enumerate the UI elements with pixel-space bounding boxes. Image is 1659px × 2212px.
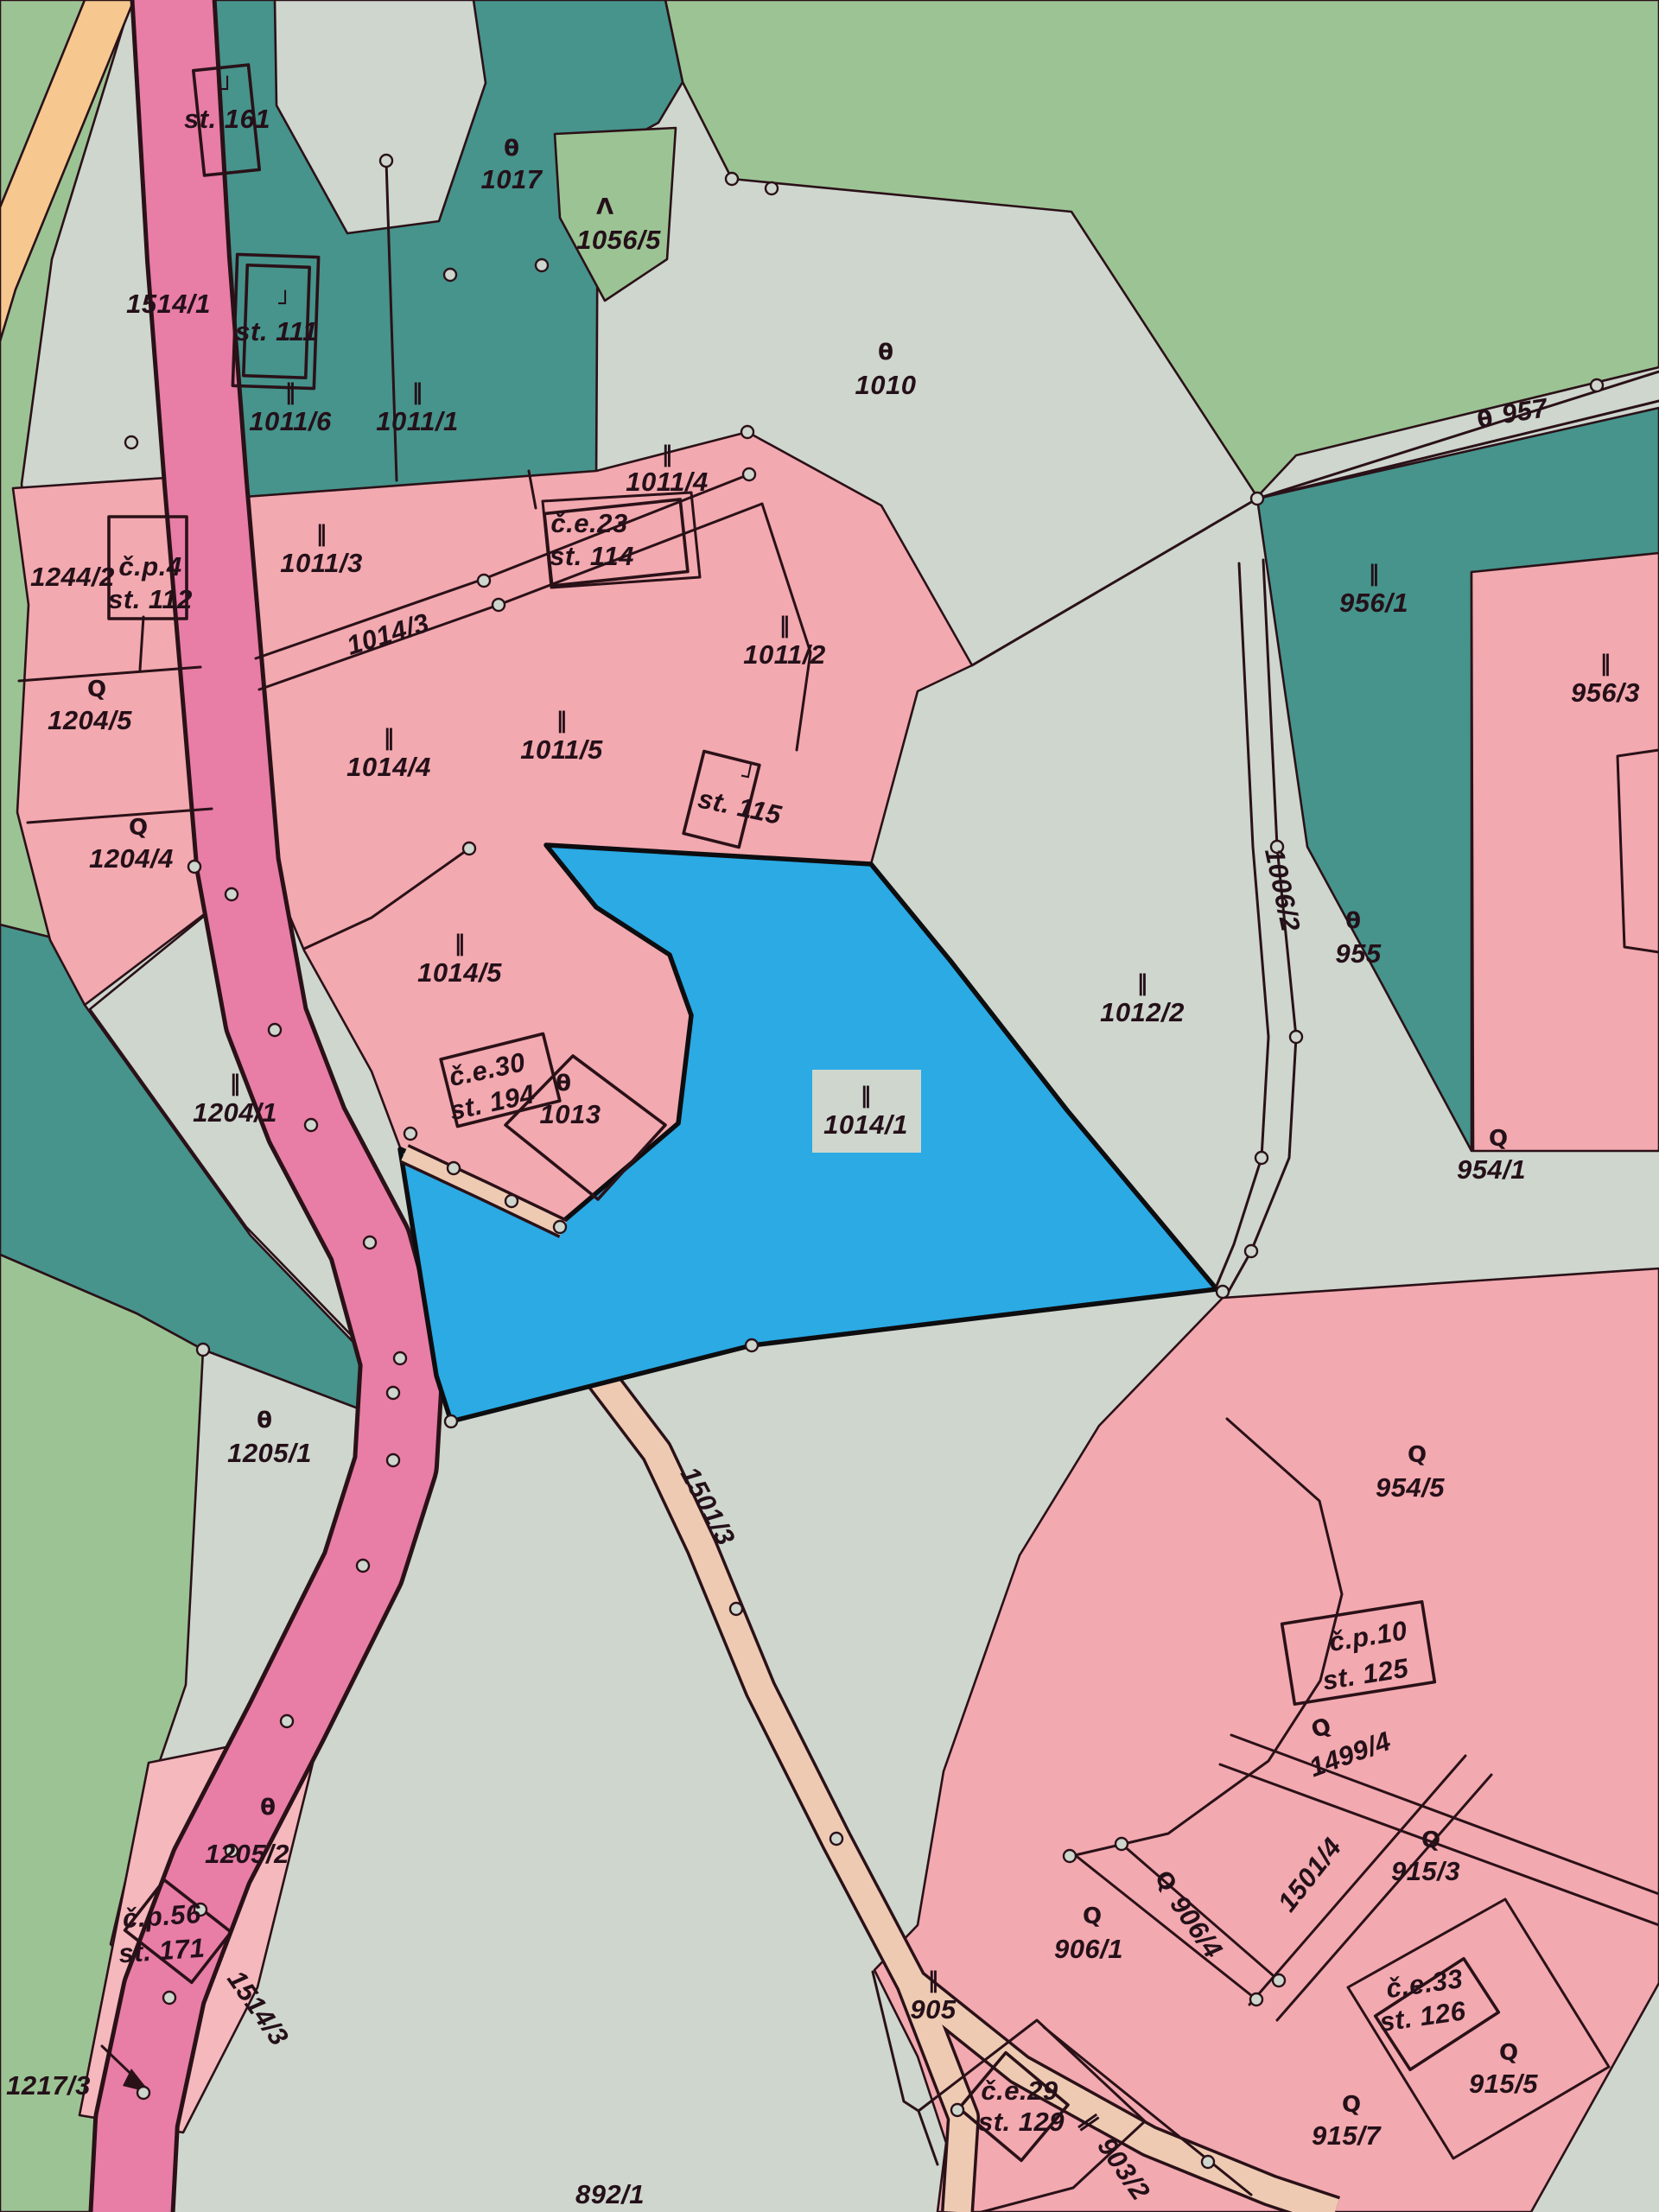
parcel-label-st-112: st. 112 bbox=[108, 584, 193, 614]
landuse-symbol: ‖ bbox=[412, 379, 423, 405]
landuse-symbol: ‖ bbox=[1600, 651, 1611, 677]
parcel-label-1056-5: 1056/5 bbox=[576, 225, 661, 255]
landuse-symbol: ‖ bbox=[1369, 561, 1380, 587]
parcel-label-892-1: 892/1 bbox=[575, 2179, 645, 2209]
parcel-label-1017: 1017 bbox=[481, 164, 543, 194]
landuse-symbol: θ bbox=[504, 136, 519, 162]
parcel-label-1204-5: 1204/5 bbox=[48, 705, 132, 735]
landuse-symbol: ‖ bbox=[1137, 970, 1148, 996]
landuse-symbol: Q bbox=[87, 677, 106, 702]
landuse-symbol: Q bbox=[1499, 2040, 1518, 2066]
landuse-symbol: θ bbox=[1345, 908, 1361, 934]
parcel-label-956-1: 956/1 bbox=[1339, 588, 1408, 618]
landuse-symbol: ‖ bbox=[662, 442, 673, 467]
landuse-symbol: ‖ bbox=[779, 613, 791, 639]
parcel-label-954-5: 954/5 bbox=[1376, 1472, 1445, 1503]
pink-parcel-956-3 bbox=[1471, 553, 1659, 1151]
landuse-symbol: ┘ bbox=[277, 289, 292, 317]
parcel-label-1011-5: 1011/5 bbox=[520, 734, 603, 765]
parcel-label-1204-4: 1204/4 bbox=[89, 843, 174, 874]
parcel-label-1011-1: 1011/1 bbox=[376, 406, 459, 436]
landuse-symbol: θ bbox=[257, 1408, 272, 1433]
parcel-label-1014-1: 1014/1 bbox=[823, 1109, 908, 1140]
landuse-symbol: Q bbox=[1421, 1827, 1440, 1853]
landuse-symbol: ‖ bbox=[454, 931, 466, 957]
cadastral-map-svg: ┘st. 161θ1017Λ1056/51514/1┘st. 111‖1011/… bbox=[0, 0, 1659, 2212]
landuse-symbol: Q bbox=[1408, 1442, 1427, 1468]
parcel-label-st-111: st. 111 bbox=[235, 316, 317, 346]
parcel-label-905: 905 bbox=[910, 1994, 956, 2024]
landuse-symbol: Q bbox=[1342, 2092, 1361, 2118]
landuse-symbol: θ bbox=[556, 1071, 571, 1096]
parcel-label-1014-4: 1014/4 bbox=[346, 752, 431, 782]
parcel-label-1011-6: 1011/6 bbox=[249, 406, 332, 436]
parcel-label-1205-2: 1205/2 bbox=[205, 1839, 289, 1869]
parcel-label-915-3: 915/3 bbox=[1391, 1856, 1460, 1886]
landuse-symbol: θ bbox=[878, 340, 893, 365]
landuse-symbol: ‖ bbox=[230, 1071, 241, 1096]
parcel-label--e-29: č.e.29 bbox=[981, 2075, 1058, 2106]
landuse-symbol: θ bbox=[260, 1795, 276, 1821]
parcel-label-1205-1: 1205/1 bbox=[227, 1438, 312, 1468]
landuse-symbol: ‖ bbox=[928, 1967, 939, 1993]
parcel-label-1012-2: 1012/2 bbox=[1100, 997, 1185, 1027]
parcel-label-1013: 1013 bbox=[540, 1099, 601, 1129]
landuse-symbol: Q bbox=[129, 815, 148, 841]
parcel-label-st-129: st. 129 bbox=[978, 2107, 1065, 2137]
parcel-label-955: 955 bbox=[1335, 938, 1381, 969]
parcel-label--e-23: č.e.23 bbox=[550, 508, 627, 538]
landuse-symbol: ‖ bbox=[556, 708, 568, 734]
parcel-label-956-3: 956/3 bbox=[1571, 677, 1640, 708]
parcel-label-1011-2: 1011/2 bbox=[743, 639, 826, 670]
landuse-symbol: Q bbox=[1489, 1126, 1508, 1152]
parcel-label-1014-5: 1014/5 bbox=[417, 957, 502, 988]
landuse-symbol: ┘ bbox=[219, 75, 234, 103]
parcel-label-st-114: st. 114 bbox=[550, 541, 634, 571]
landuse-symbol: Λ bbox=[596, 194, 613, 220]
parcel-label-1011-4: 1011/4 bbox=[626, 467, 709, 497]
parcel-label-915-5: 915/5 bbox=[1469, 2069, 1538, 2099]
parcel-label--p-4: č.p.4 bbox=[118, 551, 181, 582]
parcel-label-st-171: st. 171 bbox=[118, 1933, 206, 1969]
parcel-label--p-56: č.p.56 bbox=[122, 1898, 202, 1934]
parcel-label-1204-1: 1204/1 bbox=[193, 1097, 277, 1128]
parcel-label-1010: 1010 bbox=[855, 370, 917, 400]
landuse-symbol: ‖ bbox=[316, 521, 327, 547]
landuse-symbol: ‖ bbox=[861, 1083, 872, 1109]
parcel-label-906-1: 906/1 bbox=[1054, 1934, 1123, 1964]
parcel-label-954-1: 954/1 bbox=[1457, 1154, 1526, 1185]
parcel-label-1244-2: 1244/2 bbox=[30, 562, 115, 592]
landuse-symbol: ‖ bbox=[384, 725, 395, 751]
parcel-label-1217-3: 1217/3 bbox=[6, 2070, 91, 2101]
landuse-symbol: Q bbox=[1083, 1904, 1102, 1929]
landuse-symbol: ‖ bbox=[285, 379, 296, 405]
cadastral-map-page: ┘st. 161θ1017Λ1056/51514/1┘st. 111‖1011/… bbox=[0, 0, 1659, 2212]
parcel-label-915-7: 915/7 bbox=[1312, 2120, 1382, 2151]
parcel-label-1514-1: 1514/1 bbox=[126, 289, 211, 319]
parcel-label-1011-3: 1011/3 bbox=[280, 548, 363, 578]
parcel-label-st-161: st. 161 bbox=[184, 104, 270, 134]
